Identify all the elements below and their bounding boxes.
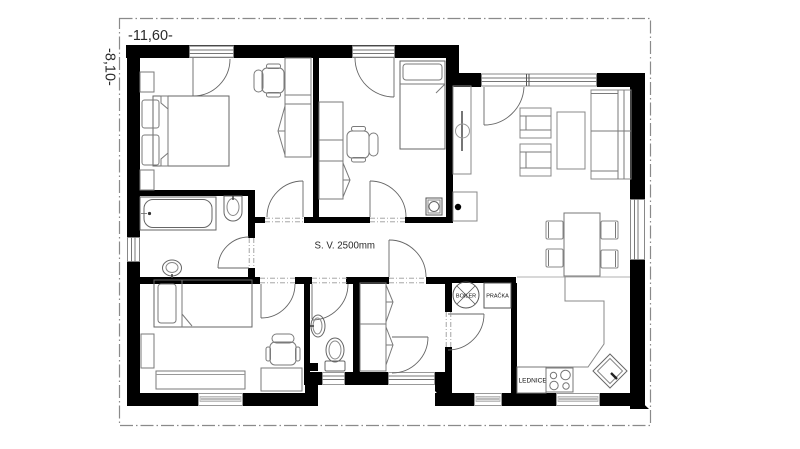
svg-text:S. V. 2500mm: S. V. 2500mm — [315, 241, 376, 252]
svg-text:-8,10-: -8,10- — [102, 48, 118, 86]
svg-text:-11,60-: -11,60- — [128, 28, 173, 44]
svg-text:LEDNICE: LEDNICE — [519, 378, 548, 385]
svg-text:PRAČKA: PRAČKA — [486, 293, 509, 300]
svg-text:BOILER: BOILER — [456, 294, 476, 300]
